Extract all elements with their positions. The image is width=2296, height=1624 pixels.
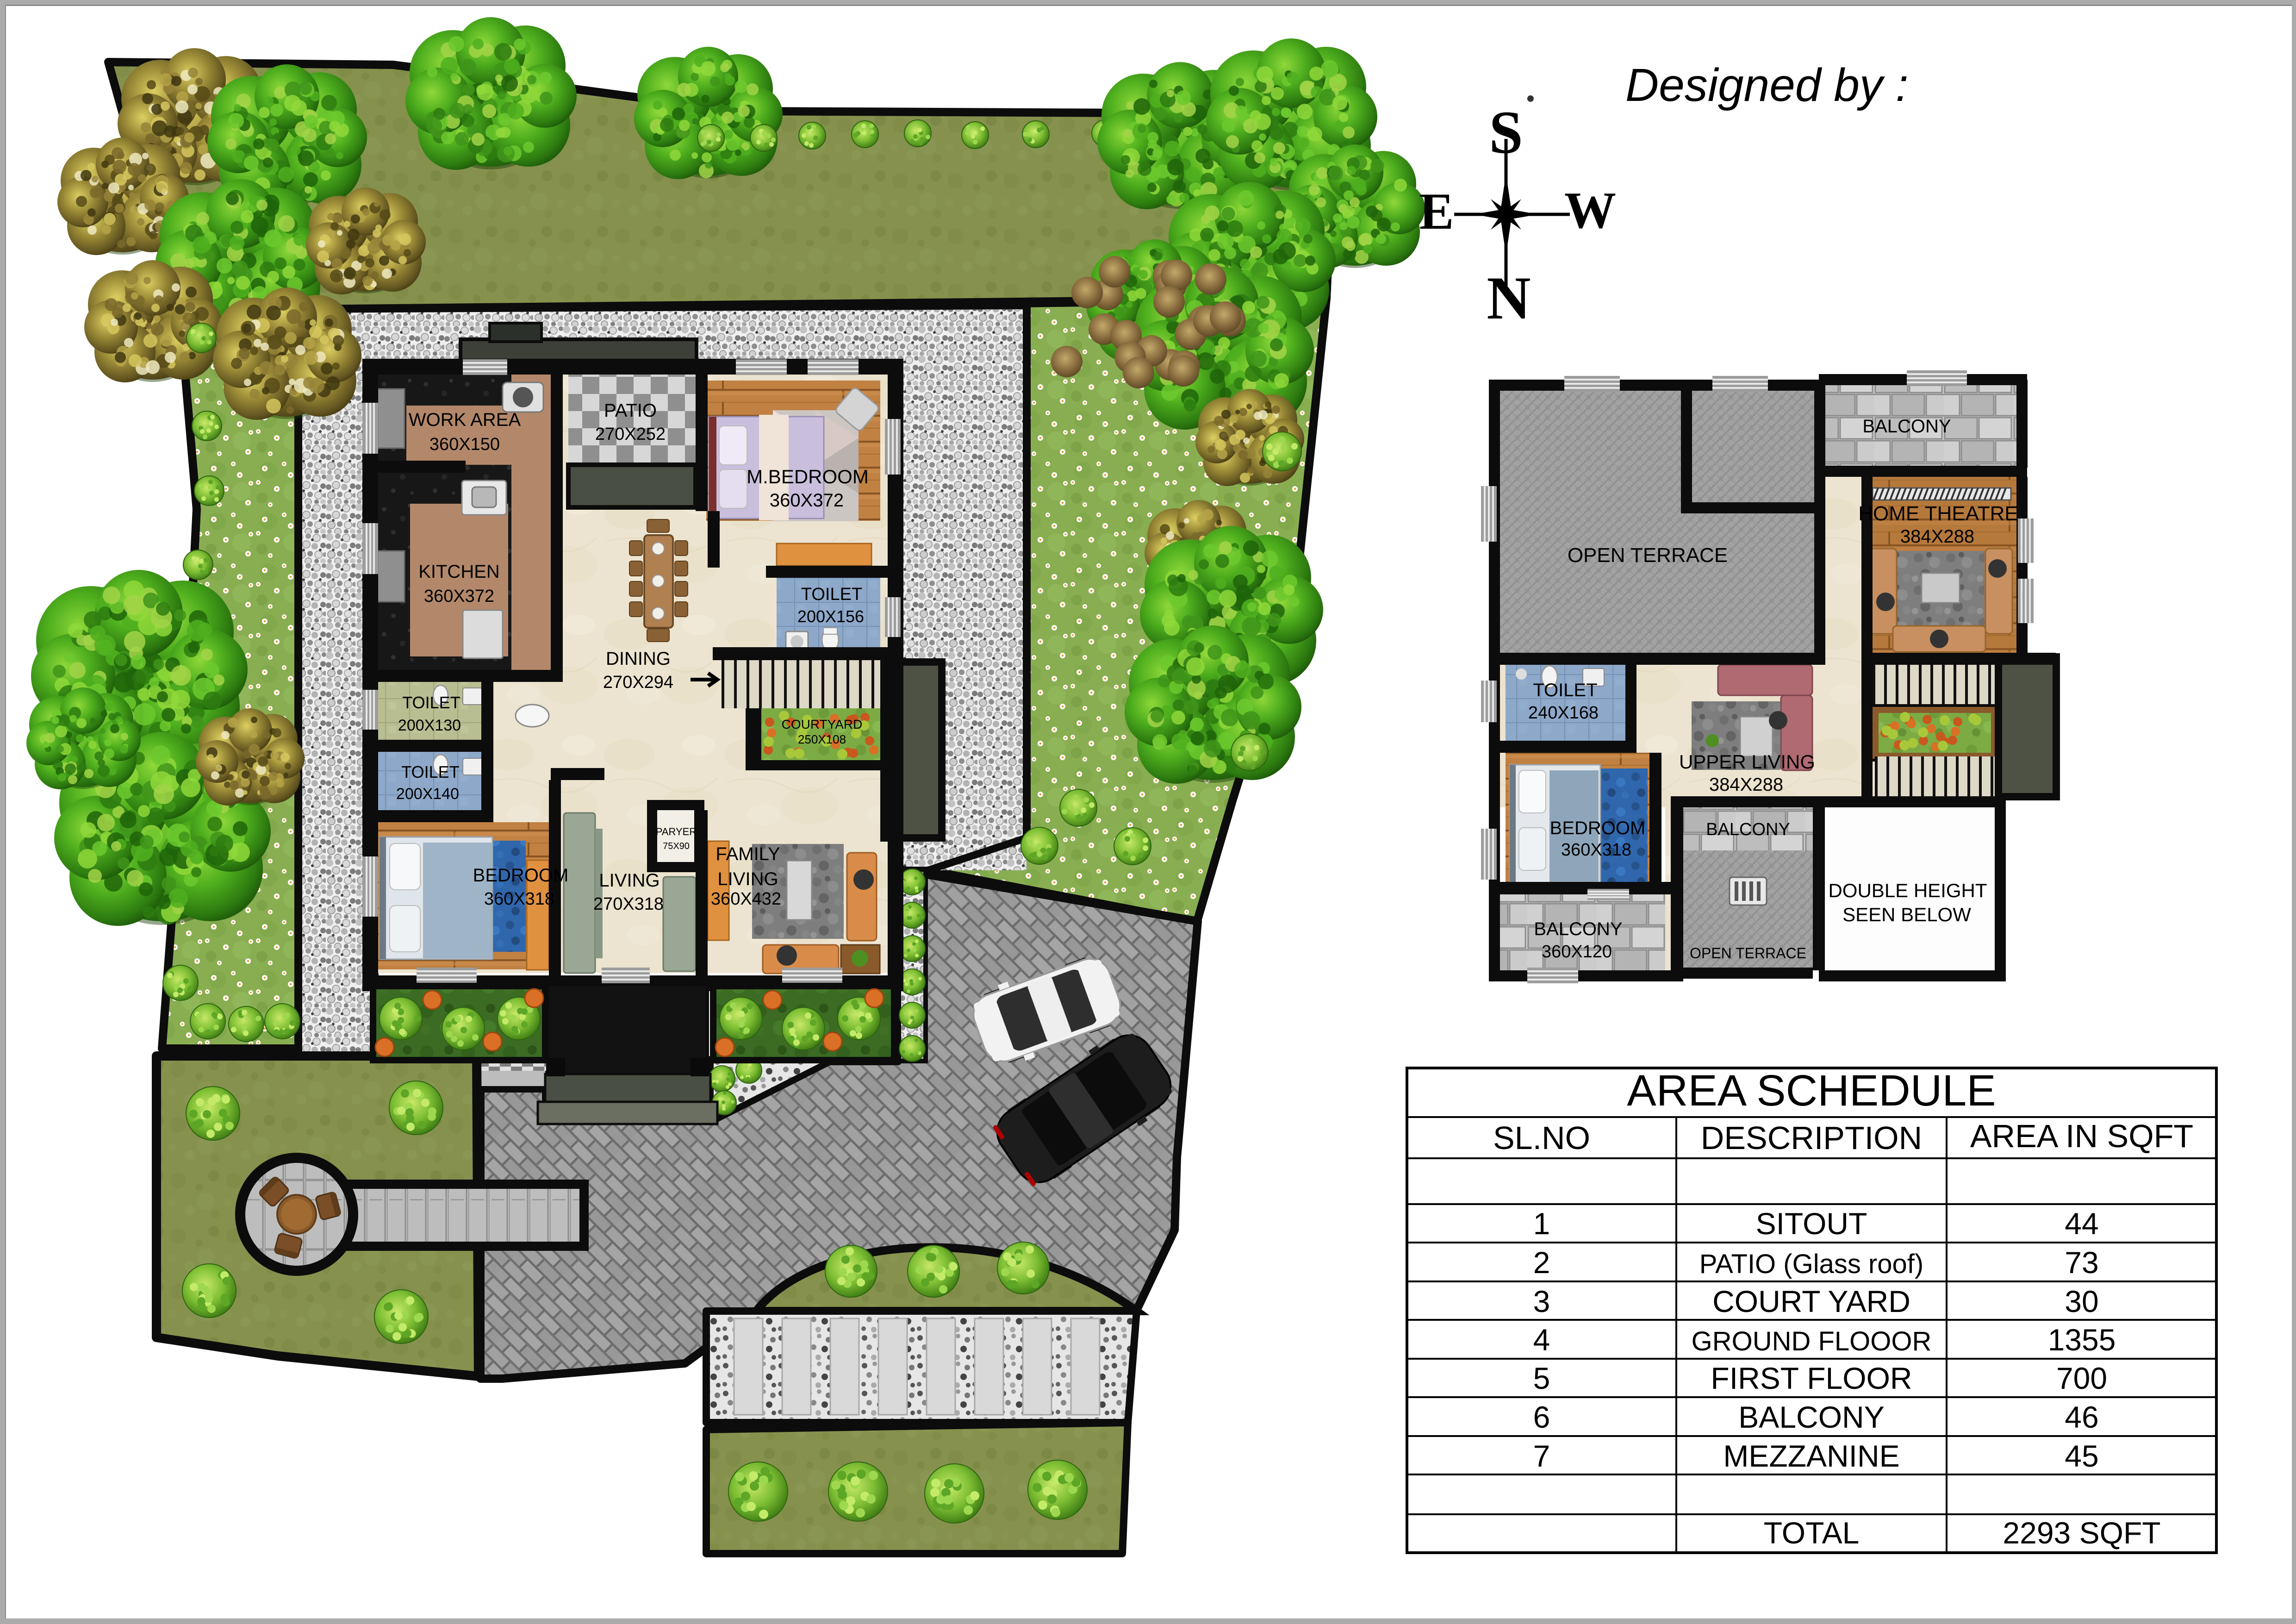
svg-text:73: 73 [2065,1245,2098,1280]
svg-text:BALCONY: BALCONY [1738,1400,1884,1434]
svg-text:360X318: 360X318 [484,889,554,909]
svg-text:75X90: 75X90 [663,841,690,851]
svg-text:COURTYARD: COURTYARD [782,717,863,731]
svg-text:TOTAL: TOTAL [1764,1516,1860,1550]
svg-text:PARYER: PARYER [656,826,697,837]
svg-text:PATIO: PATIO [604,400,657,421]
svg-text:FAMILY: FAMILY [716,844,780,864]
svg-text:WORK AREA: WORK AREA [409,410,521,430]
svg-text:SL.NO: SL.NO [1493,1120,1590,1156]
svg-text:240X168: 240X168 [1528,703,1599,723]
svg-text:7: 7 [1533,1439,1550,1473]
svg-text:360X432: 360X432 [711,889,781,909]
svg-text:3: 3 [1533,1284,1550,1318]
svg-text:TOILET: TOILET [1533,680,1597,700]
svg-text:4: 4 [1533,1323,1550,1357]
svg-text:384X288: 384X288 [1900,526,1974,547]
svg-text:BALCONY: BALCONY [1534,919,1622,939]
svg-text:W: W [1564,182,1616,239]
svg-text:KITCHEN: KITCHEN [418,562,500,582]
svg-text:1: 1 [1533,1206,1550,1241]
svg-text:N: N [1487,264,1531,332]
svg-text:LIVING: LIVING [717,869,778,889]
svg-text:360X372: 360X372 [770,490,844,511]
svg-text:6: 6 [1533,1400,1550,1434]
svg-text:2: 2 [1533,1245,1550,1280]
svg-text:270X294: 270X294 [603,673,673,692]
svg-text:DOUBLE HEIGHT: DOUBLE HEIGHT [1828,880,1987,901]
svg-text:Designed by :: Designed by : [1625,59,1908,111]
svg-text:TOILET: TOILET [401,762,459,781]
svg-text:360X372: 360X372 [424,587,494,606]
svg-text:GROUND FLOOOR: GROUND FLOOOR [1692,1326,1932,1356]
svg-text:270X252: 270X252 [595,425,666,444]
svg-text:360X120: 360X120 [1542,942,1612,962]
svg-text:FIRST FLOOR: FIRST FLOOR [1711,1361,1912,1395]
svg-text:700: 700 [2056,1361,2107,1395]
svg-text:250X108: 250X108 [798,732,846,746]
svg-text:BEDROOM: BEDROOM [473,865,569,886]
svg-text:BALCONY: BALCONY [1862,416,1951,437]
svg-text:384X288: 384X288 [1709,775,1783,795]
svg-text:360X150: 360X150 [429,435,500,454]
svg-text:SITOUT: SITOUT [1756,1206,1867,1241]
svg-text:45: 45 [2065,1439,2098,1473]
svg-text:BEDROOM: BEDROOM [1550,818,1646,838]
svg-text:46: 46 [2065,1400,2098,1434]
svg-text:TOILET: TOILET [402,693,460,712]
svg-text:PATIO (Glass roof): PATIO (Glass roof) [1699,1249,1923,1279]
svg-text:44: 44 [2065,1206,2098,1241]
svg-text:TOILET: TOILET [801,585,862,604]
svg-text:MEZZANINE: MEZZANINE [1723,1439,1899,1473]
svg-text:E: E [1419,183,1454,240]
svg-text:270X318: 270X318 [593,894,664,914]
svg-text:M.BEDROOM: M.BEDROOM [747,466,869,487]
svg-text:5: 5 [1533,1361,1550,1395]
svg-text:S: S [1489,98,1523,166]
svg-text:AREA IN SQFT: AREA IN SQFT [1970,1118,2193,1154]
svg-text:360X318: 360X318 [1561,840,1631,860]
svg-text:BALCONY: BALCONY [1706,820,1790,839]
svg-text:COURT YARD: COURT YARD [1712,1284,1910,1318]
svg-text:SEEN BELOW: SEEN BELOW [1842,904,1971,925]
svg-text:1355: 1355 [2048,1323,2116,1357]
svg-text:OPEN TERRACE: OPEN TERRACE [1690,945,1806,962]
svg-text:2293 SQFT: 2293 SQFT [2003,1516,2160,1550]
svg-text:AREA SCHEDULE: AREA SCHEDULE [1627,1066,1996,1115]
svg-text:HOME THEATRE: HOME THEATRE [1858,502,2018,525]
svg-text:UPPER LIVING: UPPER LIVING [1679,751,1815,773]
svg-text:DINING: DINING [606,649,671,669]
svg-text:LIVING: LIVING [599,870,660,891]
svg-text:OPEN TERRACE: OPEN TERRACE [1568,544,1728,567]
svg-text:200X140: 200X140 [396,785,459,803]
svg-text:200X156: 200X156 [797,607,864,626]
svg-text:30: 30 [2065,1284,2098,1318]
svg-text:DESCRIPTION: DESCRIPTION [1701,1120,1922,1156]
svg-text:200X130: 200X130 [398,717,461,734]
